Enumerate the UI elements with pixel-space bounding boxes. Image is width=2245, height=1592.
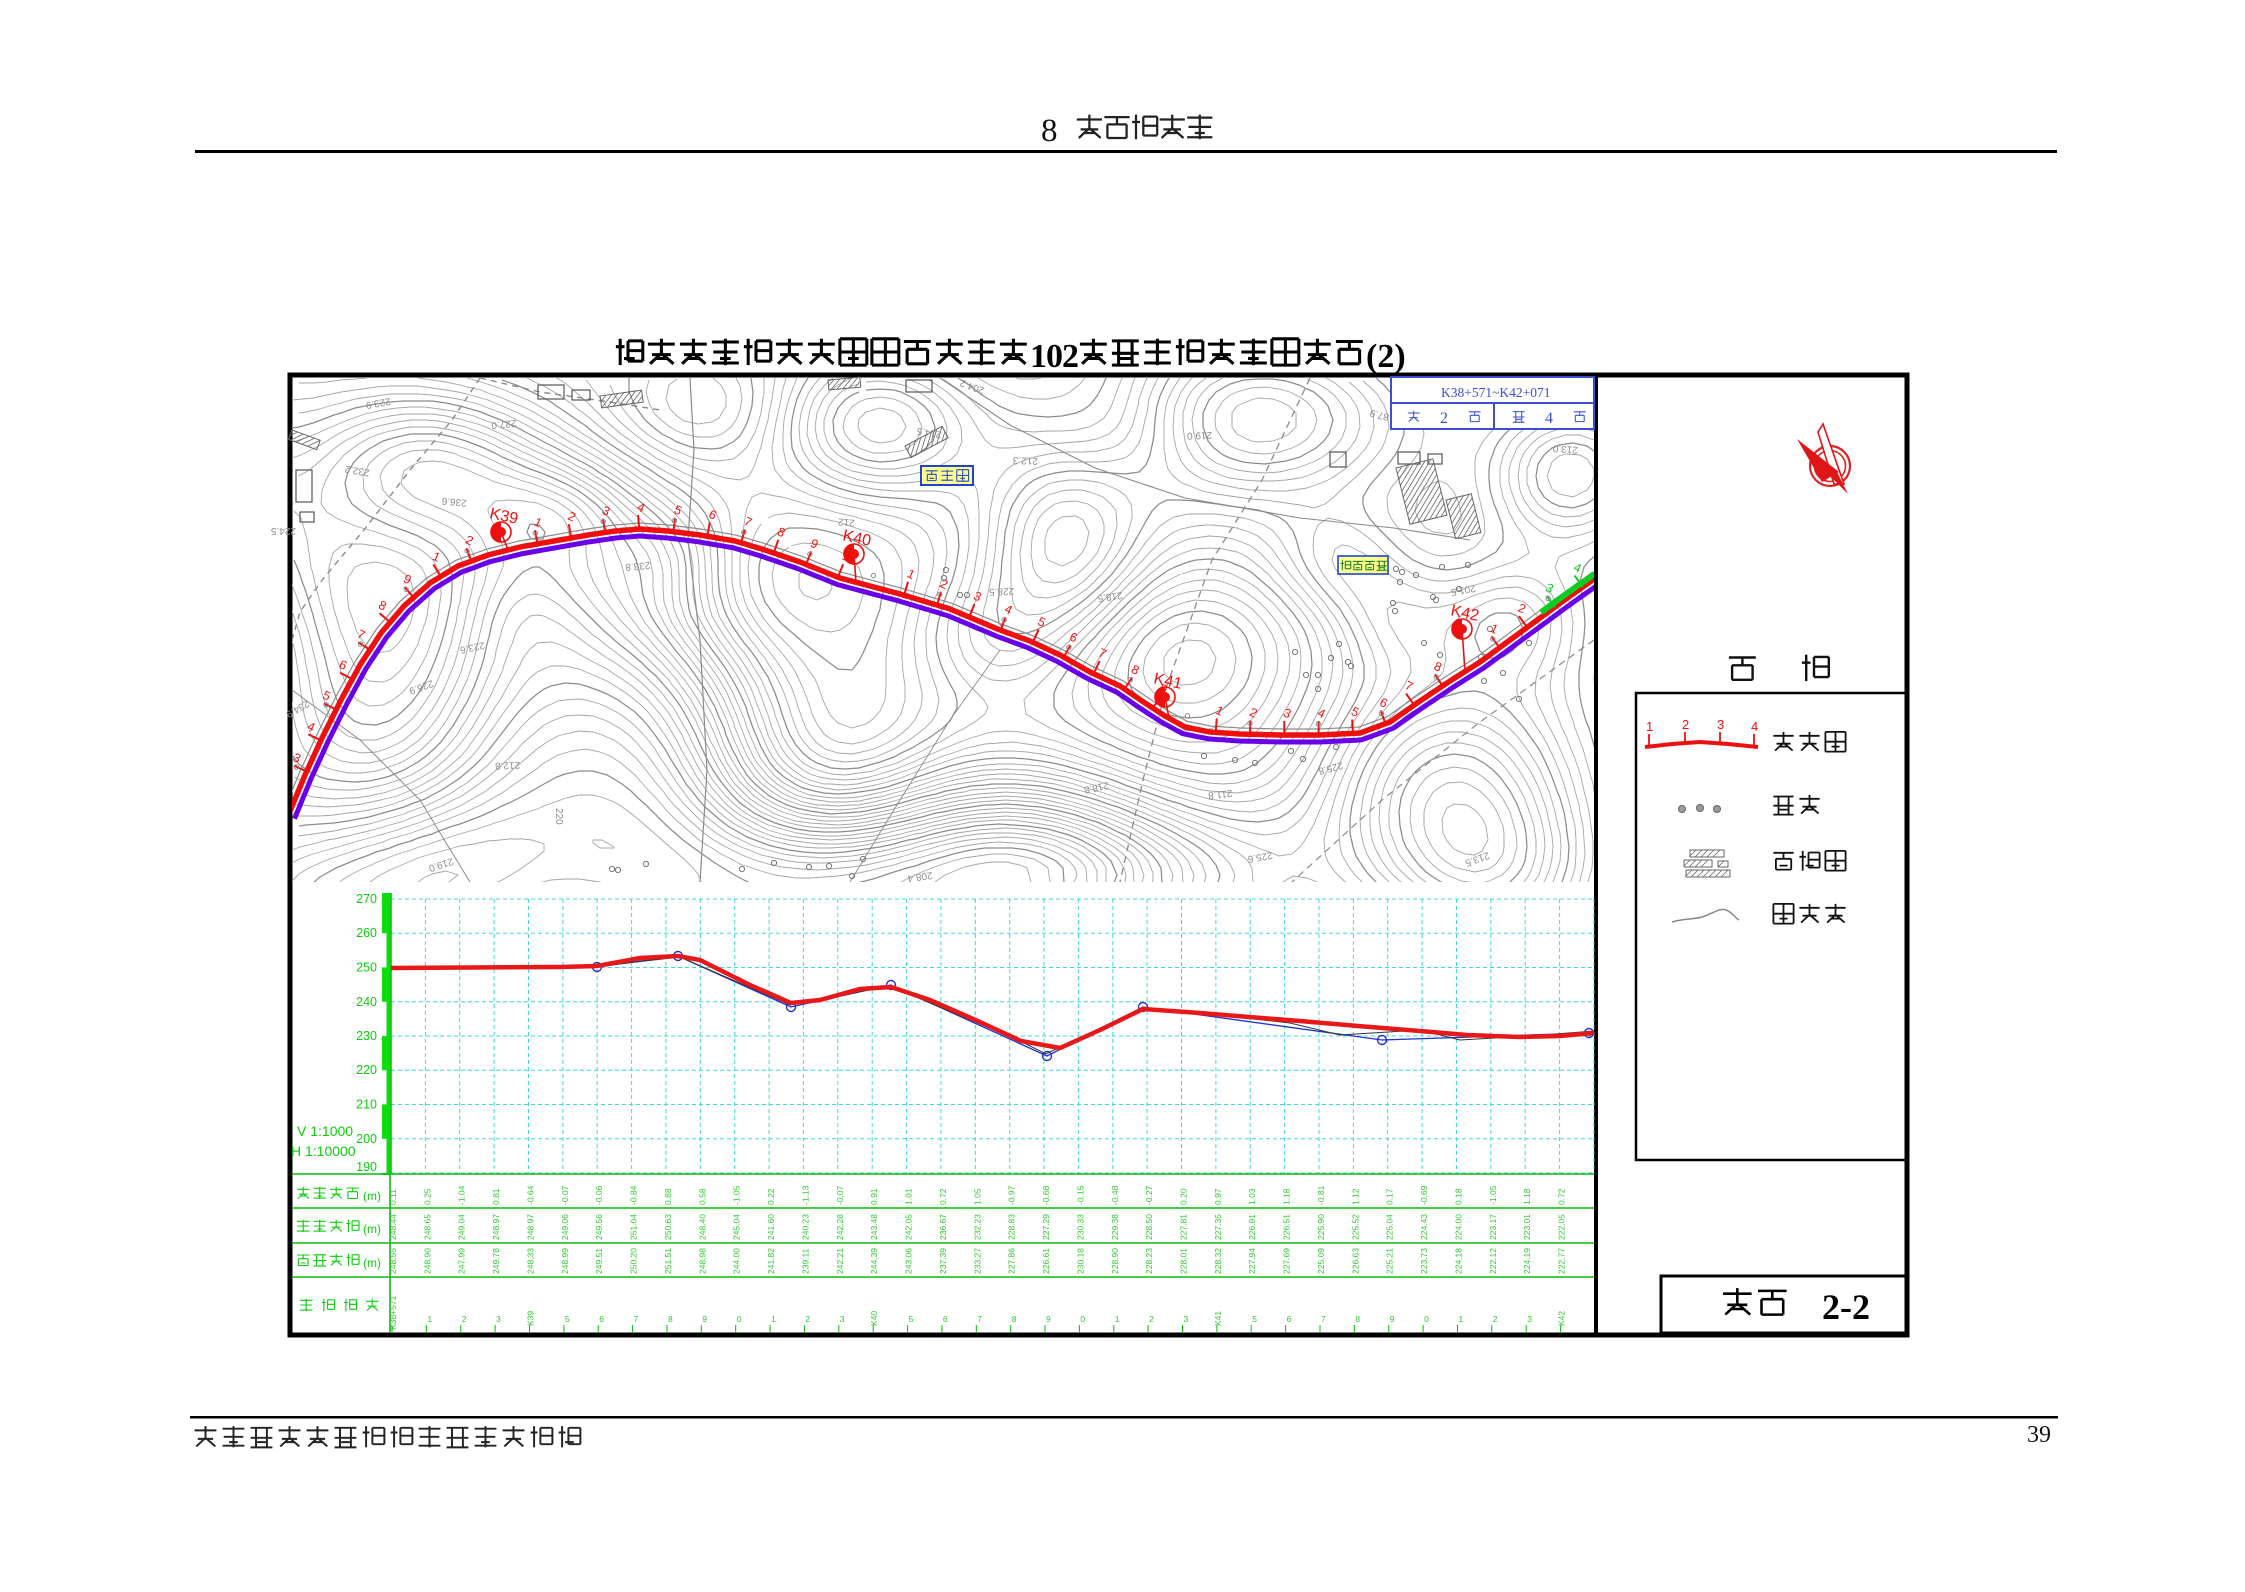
svg-text:224.19: 224.19: [1522, 1248, 1532, 1274]
svg-text:0.18: 0.18: [1454, 1188, 1464, 1205]
svg-text:-0.84: -0.84: [629, 1185, 639, 1205]
svg-text:0: 0: [1080, 1314, 1085, 1324]
svg-text:240.23: 240.23: [800, 1214, 810, 1240]
svg-text:H 1:10000: H 1:10000: [291, 1143, 356, 1159]
svg-text:220: 220: [356, 1063, 377, 1077]
svg-text:236.6: 236.6: [441, 495, 467, 508]
svg-text:228.50: 228.50: [1144, 1214, 1154, 1240]
svg-text:219.0: 219.0: [1186, 429, 1212, 441]
svg-text:1.12: 1.12: [1350, 1188, 1360, 1205]
svg-text:220: 220: [553, 808, 564, 825]
svg-text:9: 9: [1046, 1314, 1051, 1324]
svg-text:8: 8: [1355, 1314, 1360, 1324]
svg-text:1: 1: [1459, 1314, 1464, 1324]
svg-text:248.44: 248.44: [388, 1214, 398, 1240]
svg-text:230.33: 230.33: [1075, 1214, 1085, 1240]
svg-text:228.01: 228.01: [1179, 1248, 1189, 1274]
svg-text:227.35: 227.35: [1213, 1214, 1223, 1240]
svg-text:5: 5: [909, 1314, 914, 1324]
svg-text:233.27: 233.27: [972, 1248, 982, 1274]
svg-text:0.58: 0.58: [697, 1188, 707, 1205]
svg-text:-0.06: -0.06: [594, 1185, 604, 1205]
svg-text:-1.05: -1.05: [1488, 1185, 1498, 1205]
svg-text:5: 5: [565, 1314, 570, 1324]
svg-text:212.3: 212.3: [1012, 454, 1038, 466]
svg-text:210: 210: [356, 1098, 377, 1112]
svg-text:248.99: 248.99: [560, 1248, 570, 1274]
svg-text:225.09: 225.09: [1316, 1248, 1326, 1274]
svg-text:248.90: 248.90: [422, 1248, 432, 1274]
svg-text:1: 1: [771, 1314, 776, 1324]
svg-text:229.38: 229.38: [1110, 1214, 1120, 1240]
svg-text:2: 2: [1682, 717, 1689, 732]
svg-text:222.12: 222.12: [1488, 1248, 1498, 1274]
svg-text:-1.04: -1.04: [457, 1185, 467, 1205]
svg-text:248.97: 248.97: [491, 1214, 501, 1240]
svg-text:224.5: 224.5: [271, 525, 296, 536]
svg-text:249.04: 249.04: [457, 1214, 467, 1240]
svg-text:2: 2: [805, 1314, 810, 1324]
svg-text:225.52: 225.52: [1350, 1214, 1360, 1240]
svg-text:0.88: 0.88: [663, 1188, 673, 1205]
svg-text:222.05: 222.05: [1557, 1214, 1567, 1240]
svg-text:224.43: 224.43: [1419, 1214, 1429, 1240]
svg-text:249.06: 249.06: [560, 1214, 570, 1240]
svg-text:-0.69: -0.69: [1419, 1185, 1429, 1205]
svg-text:6: 6: [1287, 1314, 1292, 1324]
svg-text:213.0: 213.0: [1552, 442, 1578, 455]
svg-text:9: 9: [702, 1314, 707, 1324]
svg-text:6: 6: [599, 1314, 604, 1324]
svg-text:243.48: 243.48: [869, 1214, 879, 1240]
svg-text:0.72: 0.72: [938, 1188, 948, 1205]
svg-text:249.56: 249.56: [594, 1214, 604, 1240]
svg-text:9: 9: [1390, 1314, 1395, 1324]
svg-text:6: 6: [943, 1314, 948, 1324]
svg-text:4: 4: [1545, 410, 1553, 427]
svg-text:K38+571~K42+071: K38+571~K42+071: [1441, 385, 1551, 400]
svg-text:225.04: 225.04: [1385, 1214, 1395, 1240]
svg-text:240: 240: [356, 995, 377, 1009]
svg-text:1.05: 1.05: [972, 1188, 982, 1205]
svg-text:(2): (2): [1366, 338, 1406, 375]
svg-text:250: 250: [356, 961, 377, 975]
svg-text:1: 1: [1030, 338, 1047, 375]
svg-text:0.11: 0.11: [388, 1189, 398, 1205]
svg-text:228.5: 228.5: [988, 585, 1014, 597]
svg-text:-0.81: -0.81: [1316, 1185, 1326, 1205]
svg-text:270: 270: [356, 892, 377, 906]
svg-text:225.21: 225.21: [1385, 1248, 1395, 1274]
svg-text:1.03: 1.03: [1247, 1188, 1257, 1205]
svg-text:4: 4: [1751, 719, 1758, 734]
svg-text:1.18: 1.18: [1282, 1188, 1292, 1205]
svg-text:-1.13: -1.13: [800, 1185, 810, 1205]
svg-text:224.00: 224.00: [1454, 1214, 1464, 1240]
svg-text:1: 1: [427, 1314, 432, 1324]
svg-text:244.39: 244.39: [869, 1248, 879, 1274]
svg-text:226.51: 226.51: [1282, 1214, 1292, 1240]
svg-text:228.32: 228.32: [1213, 1248, 1223, 1274]
svg-text:(m): (m): [363, 1256, 381, 1270]
svg-text:8: 8: [668, 1314, 673, 1324]
svg-text:0.97: 0.97: [1213, 1188, 1223, 1205]
svg-text:0.17: 0.17: [1385, 1188, 1395, 1205]
svg-text:260: 260: [356, 926, 377, 940]
svg-text:K41: K41: [1213, 1311, 1223, 1326]
svg-text:-0.15: -0.15: [1075, 1185, 1085, 1205]
svg-text:227.86: 227.86: [1007, 1248, 1017, 1274]
svg-text:200: 200: [356, 1132, 377, 1146]
svg-text:248.55: 248.55: [388, 1248, 398, 1274]
svg-text:39: 39: [2027, 1422, 2051, 1448]
svg-text:223.17: 223.17: [1488, 1214, 1498, 1240]
svg-text:236.67: 236.67: [938, 1214, 948, 1240]
svg-text:1: 1: [1115, 1314, 1120, 1324]
svg-text:227.81: 227.81: [1179, 1214, 1189, 1240]
svg-text:248.65: 248.65: [422, 1214, 432, 1240]
svg-text:244.00: 244.00: [732, 1248, 742, 1274]
svg-text:226.91: 226.91: [1247, 1214, 1257, 1240]
svg-text:7: 7: [977, 1314, 982, 1324]
svg-text:228.23: 228.23: [1144, 1248, 1154, 1274]
svg-text:227.0: 227.0: [490, 417, 516, 430]
svg-text:-1.05: -1.05: [732, 1185, 742, 1205]
svg-text:225.90: 225.90: [1316, 1214, 1326, 1240]
svg-text:228.90: 228.90: [1110, 1248, 1120, 1274]
svg-text:3: 3: [840, 1314, 845, 1324]
svg-text:0.20: 0.20: [1179, 1188, 1189, 1205]
svg-text:0.22: 0.22: [766, 1188, 776, 1205]
svg-text:247.99: 247.99: [457, 1248, 467, 1274]
svg-text:-0.97: -0.97: [1007, 1185, 1017, 1205]
svg-text:228.83: 228.83: [1007, 1214, 1017, 1240]
svg-text:241.60: 241.60: [766, 1214, 776, 1240]
svg-text:248.98: 248.98: [697, 1248, 707, 1274]
svg-text:242.28: 242.28: [835, 1214, 845, 1240]
svg-text:248.97: 248.97: [526, 1214, 536, 1240]
svg-text:251.51: 251.51: [663, 1248, 673, 1274]
svg-text:K39: K39: [526, 1311, 536, 1326]
svg-text:226.63: 226.63: [1350, 1248, 1360, 1274]
svg-text:230.18: 230.18: [1075, 1248, 1085, 1274]
svg-text:7: 7: [1321, 1314, 1326, 1324]
svg-text:K42: K42: [1557, 1311, 1567, 1326]
svg-text:250.63: 250.63: [663, 1214, 673, 1240]
svg-text:5: 5: [1252, 1314, 1257, 1324]
svg-text:250.20: 250.20: [629, 1248, 639, 1274]
svg-text:222.77: 222.77: [1557, 1248, 1567, 1274]
svg-text:0.91: 0.91: [869, 1188, 879, 1205]
svg-text:237.39: 237.39: [938, 1248, 948, 1274]
svg-text:249.51: 249.51: [594, 1248, 604, 1274]
svg-text:-0.27: -0.27: [1144, 1185, 1154, 1205]
svg-text:V 1:1000: V 1:1000: [297, 1123, 353, 1139]
svg-text:0.25: 0.25: [422, 1188, 432, 1205]
svg-text:3: 3: [496, 1314, 501, 1324]
svg-text:249.78: 249.78: [491, 1248, 501, 1274]
svg-text:-0.64: -0.64: [526, 1185, 536, 1205]
svg-text:233.8: 233.8: [624, 559, 650, 572]
svg-text:(m): (m): [363, 1222, 381, 1236]
svg-text:2-2: 2-2: [1822, 1287, 1870, 1327]
svg-text:2: 2: [1440, 410, 1448, 427]
svg-text:3: 3: [1717, 717, 1724, 732]
svg-text:0.81: 0.81: [491, 1188, 501, 1205]
svg-text:243.06: 243.06: [904, 1248, 914, 1274]
svg-text:223.01: 223.01: [1522, 1214, 1532, 1240]
svg-text:3: 3: [1184, 1314, 1189, 1324]
svg-text:2: 2: [462, 1314, 467, 1324]
svg-text:1.18: 1.18: [1522, 1188, 1532, 1205]
svg-text:224.18: 224.18: [1454, 1248, 1464, 1274]
svg-text:212.8: 212.8: [494, 759, 520, 771]
svg-text:-0.07: -0.07: [835, 1185, 845, 1205]
svg-text:241.82: 241.82: [766, 1248, 776, 1274]
svg-text:239.11: 239.11: [800, 1248, 810, 1274]
svg-text:190: 190: [356, 1160, 377, 1174]
svg-text:230: 230: [356, 1029, 377, 1043]
svg-text:7: 7: [634, 1314, 639, 1324]
svg-text:227.29: 227.29: [1041, 1214, 1051, 1240]
svg-text:0.72: 0.72: [1557, 1188, 1567, 1205]
svg-text:2: 2: [1149, 1314, 1154, 1324]
svg-text:242.05: 242.05: [904, 1214, 914, 1240]
svg-text:3: 3: [1527, 1314, 1532, 1324]
svg-text:248.33: 248.33: [526, 1248, 536, 1274]
svg-text:K38+571: K38+571: [388, 1295, 398, 1330]
svg-text:227.69: 227.69: [1282, 1248, 1292, 1274]
svg-text:2: 2: [1062, 338, 1079, 375]
svg-text:2: 2: [1493, 1314, 1498, 1324]
svg-text:212: 212: [837, 516, 855, 528]
svg-text:0: 0: [1046, 338, 1063, 375]
svg-text:232.23: 232.23: [972, 1214, 982, 1240]
svg-text:245.04: 245.04: [732, 1214, 742, 1240]
svg-text:-0.07: -0.07: [560, 1185, 570, 1205]
svg-text:K40: K40: [869, 1311, 879, 1326]
svg-text:1: 1: [1646, 719, 1653, 734]
svg-text:0: 0: [1424, 1314, 1429, 1324]
svg-text:223.73: 223.73: [1419, 1248, 1429, 1274]
svg-text:227.94: 227.94: [1247, 1248, 1257, 1274]
svg-text:(m): (m): [363, 1189, 381, 1203]
svg-text:8: 8: [1012, 1314, 1017, 1324]
svg-text:8: 8: [1041, 113, 1058, 149]
svg-text:242.21: 242.21: [835, 1248, 845, 1274]
svg-text:226.61: 226.61: [1041, 1248, 1051, 1274]
svg-text:0: 0: [737, 1314, 742, 1324]
svg-text:251.04: 251.04: [629, 1214, 639, 1240]
svg-text:-0.68: -0.68: [1041, 1185, 1051, 1205]
svg-text:248.40: 248.40: [697, 1214, 707, 1240]
svg-text:-0.48: -0.48: [1110, 1185, 1120, 1205]
svg-text:1.01: 1.01: [904, 1188, 914, 1205]
